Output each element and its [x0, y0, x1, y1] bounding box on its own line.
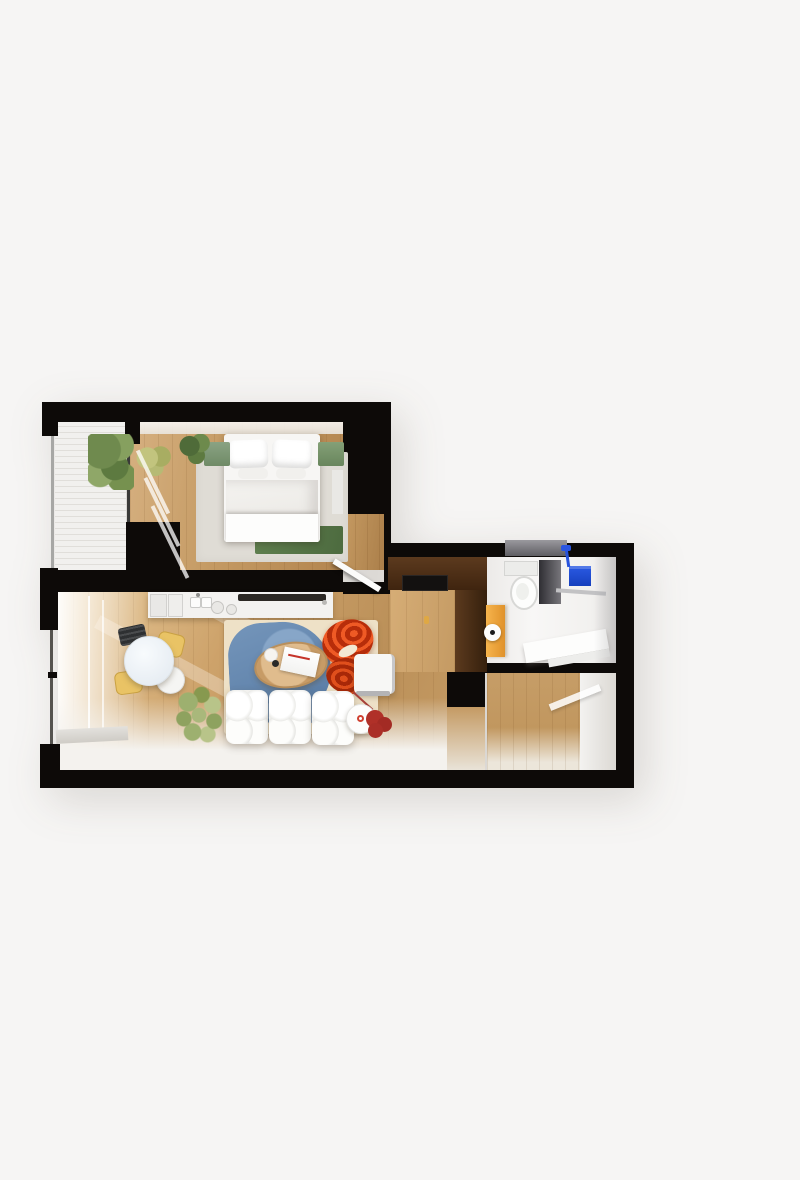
appliance-front-black	[402, 575, 448, 591]
counter-appliance	[150, 594, 167, 617]
wall-top-left-step	[42, 402, 58, 436]
coffee-cup	[272, 660, 279, 667]
entry-wood-panel	[390, 590, 455, 672]
counter-appliance	[168, 594, 183, 617]
sink-basin-left	[190, 597, 201, 608]
floor-plan-render	[0, 0, 800, 1180]
toilet-paper-core	[490, 630, 495, 635]
shower-partition	[539, 560, 561, 604]
balcony-plant	[88, 434, 134, 490]
sheer-curtain-line	[102, 600, 104, 732]
small-pillow	[238, 468, 268, 479]
sofa-module	[226, 690, 268, 744]
bathroom-wall-shadow	[594, 557, 616, 663]
wall-top	[42, 402, 354, 422]
white-pouf	[354, 654, 395, 694]
duvet	[226, 480, 318, 516]
hallway-floor	[487, 673, 582, 772]
bedroom-plant	[176, 434, 210, 464]
wall-bedroom-right-block	[343, 402, 391, 514]
cooktop-burner	[211, 601, 224, 614]
blue-shower-towel	[569, 566, 591, 586]
shower-head	[561, 545, 571, 551]
window-frame-tick	[48, 672, 57, 678]
wall-bathroom-top	[390, 543, 616, 557]
bedroom-wardrobe-panel	[332, 470, 343, 514]
folded-blanket	[226, 514, 318, 542]
pillow	[228, 439, 269, 468]
counter-rail	[238, 594, 326, 601]
cooktop-burner	[226, 604, 237, 615]
left-window-glass	[50, 630, 53, 744]
wall-left-upper	[40, 568, 58, 630]
living-room-plant	[172, 684, 226, 744]
balcony-rail	[51, 424, 54, 572]
red-side-table	[368, 723, 383, 738]
living-room-floor-ext	[447, 707, 485, 770]
wall-right	[616, 543, 634, 788]
dining-table	[124, 636, 174, 686]
faucet	[196, 593, 200, 597]
sofa-module	[269, 690, 311, 744]
bathroom-shelf	[505, 540, 567, 556]
lamp-center-core	[359, 717, 362, 720]
counter-knob	[322, 600, 327, 605]
bedroom-wall-face	[130, 420, 343, 434]
toilet-bowl-inner	[516, 583, 529, 600]
wardrobe-column	[455, 590, 487, 672]
wall-bedroom-living-divider	[56, 570, 343, 592]
sheer-curtain-line	[88, 596, 90, 736]
apartment-plan	[0, 0, 800, 1180]
green-bench-right	[318, 442, 344, 466]
bedroom-strip-floor	[343, 514, 384, 570]
pillow	[272, 439, 313, 468]
pouf-base	[356, 691, 390, 696]
wardrobe-handle	[424, 616, 429, 624]
toilet-tank	[504, 561, 538, 576]
small-pillow	[276, 468, 306, 479]
wall-bottom	[40, 770, 634, 788]
